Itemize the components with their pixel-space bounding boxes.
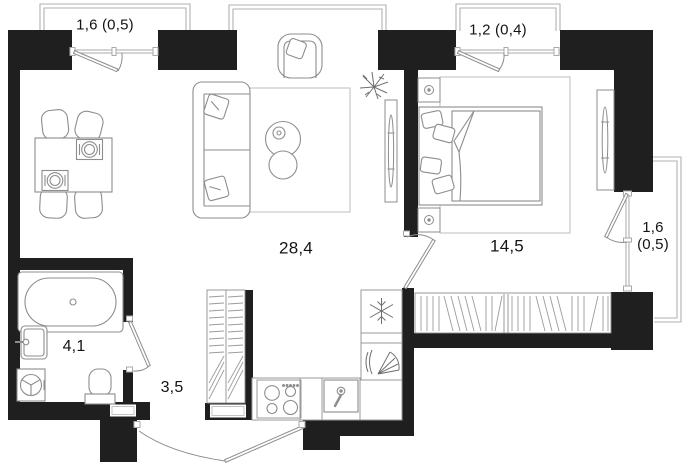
pillow bbox=[204, 175, 230, 201]
sofa bbox=[193, 82, 250, 218]
bathroom-door bbox=[127, 316, 151, 372]
dining-set bbox=[35, 109, 112, 219]
bedroom-door bbox=[404, 231, 436, 289]
tv-stand-living bbox=[385, 100, 397, 202]
balcony-door-right bbox=[605, 193, 629, 242]
plant bbox=[360, 72, 388, 99]
wardrobe-bedroom bbox=[415, 293, 611, 333]
washing-machine bbox=[17, 369, 45, 401]
tv-stand-bedroom bbox=[597, 90, 614, 190]
coffee-tables bbox=[266, 122, 301, 180]
balcony-door-top-right bbox=[457, 51, 504, 72]
entrance-door bbox=[134, 422, 305, 463]
place-setting bbox=[77, 140, 103, 160]
duct-shafts bbox=[110, 405, 246, 418]
armchair bbox=[278, 34, 322, 78]
room-label-balcony-right: 1,6 (0,5) bbox=[637, 220, 669, 254]
kitchen-sink bbox=[324, 380, 358, 412]
pillow bbox=[420, 157, 442, 175]
room-label-hallway: 3,5 bbox=[161, 379, 184, 397]
wardrobe-hallway bbox=[207, 290, 245, 403]
toilet bbox=[85, 369, 115, 404]
room-label-bedroom: 14,5 bbox=[490, 236, 524, 255]
bed bbox=[419, 107, 542, 205]
room-label-living-kitchen: 28,4 bbox=[279, 238, 313, 257]
floor-plan: 1,6 (0,5) 1,2 (0,4) 28,4 14,5 1,6 (0,5) … bbox=[0, 0, 683, 466]
place-setting bbox=[42, 171, 68, 191]
windows bbox=[70, 48, 632, 292]
nightstand-lamp bbox=[418, 208, 440, 232]
room-label-bathroom: 4,1 bbox=[63, 338, 86, 356]
floor-plan-canvas bbox=[0, 0, 683, 466]
rug-living bbox=[248, 88, 350, 212]
nightstand-lamp bbox=[418, 78, 440, 102]
bathtub bbox=[18, 272, 123, 332]
room-label-balcony-top-left: 1,6 (0,5) bbox=[76, 18, 134, 35]
room-label-balcony-top-right: 1,2 (0,4) bbox=[469, 23, 527, 40]
